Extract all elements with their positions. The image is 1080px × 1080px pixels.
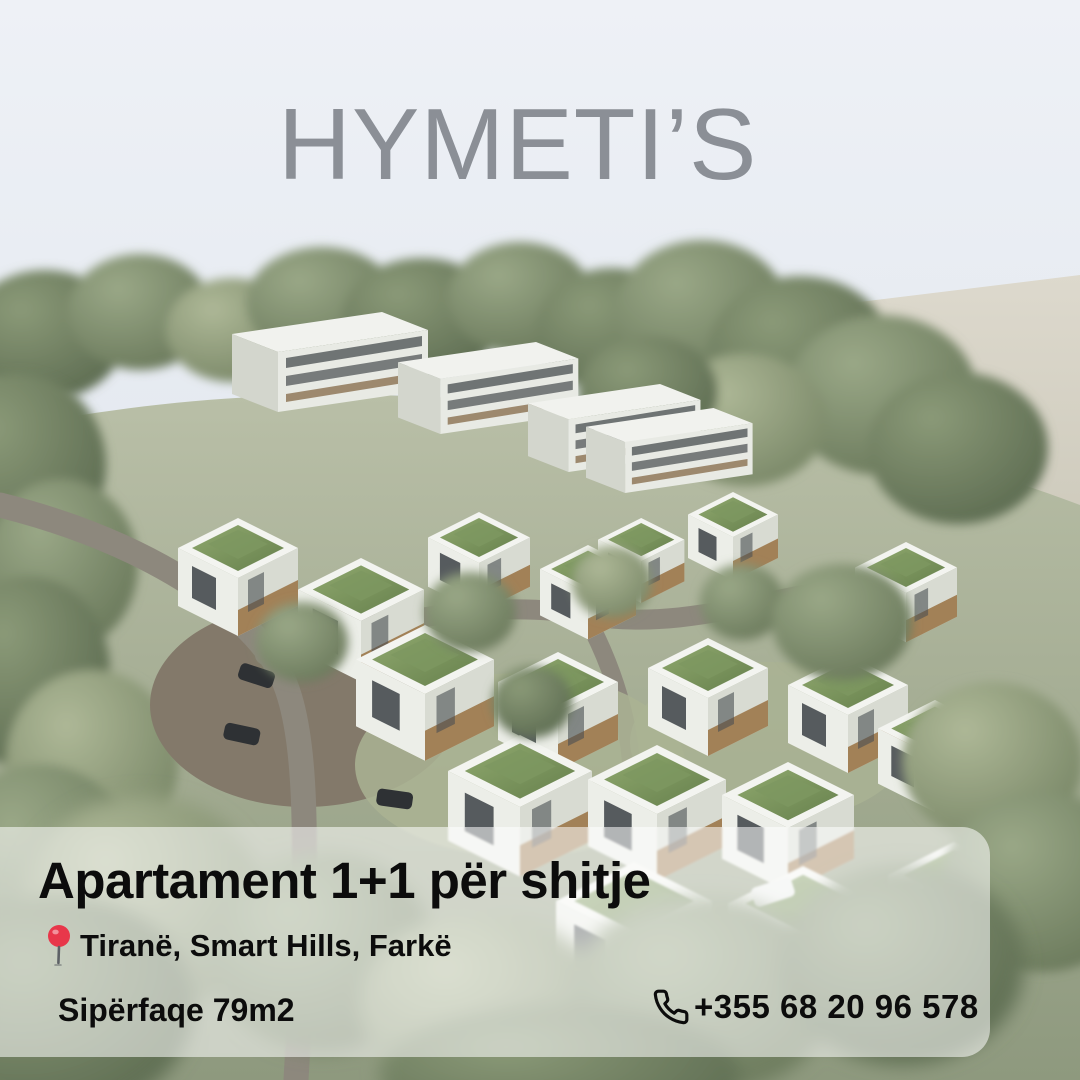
- location-row: Tiranë, Smart Hills, Farkë: [46, 923, 452, 969]
- listing-phone: +355 68 20 96 578: [694, 988, 979, 1026]
- listing-headline: Apartament 1+1 për shitje: [38, 851, 650, 910]
- location-pin-icon: [46, 923, 72, 969]
- brand-title: HYMETI’S: [278, 88, 757, 203]
- phone-row: +355 68 20 96 578: [652, 988, 979, 1026]
- listing-location: Tiranë, Smart Hills, Farkë: [80, 928, 452, 964]
- phone-icon: [652, 988, 690, 1026]
- info-panel: Apartament 1+1 për shitje Tiranë, Smart …: [0, 827, 990, 1057]
- ad-canvas: HYMETI’S Apartament 1+1 për shitje Tiran…: [0, 0, 1080, 1080]
- listing-area: Sipërfaqe 79m2: [58, 992, 295, 1029]
